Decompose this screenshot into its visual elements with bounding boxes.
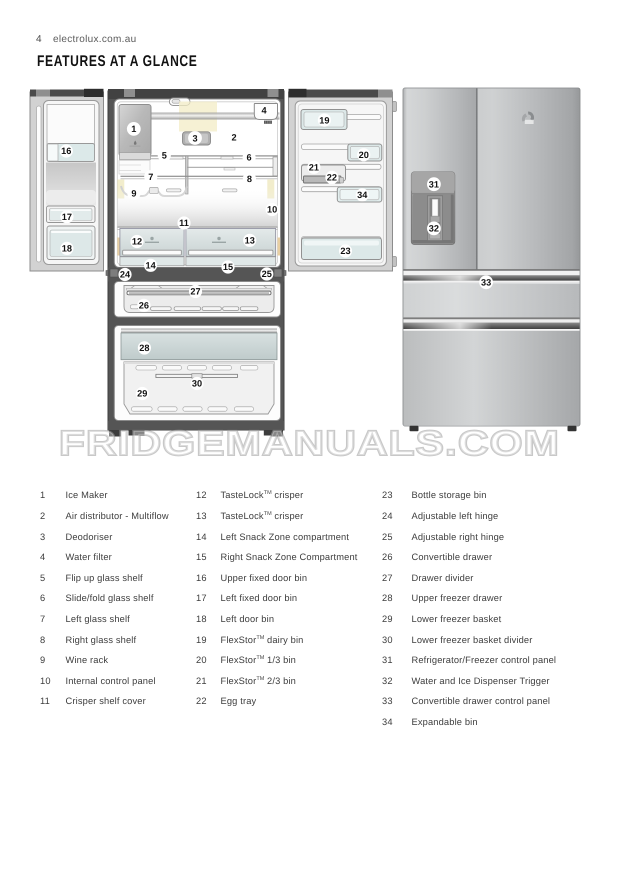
svg-text:FRIDGEMANUALS.COM: FRIDGEMANUALS.COM xyxy=(59,424,560,463)
